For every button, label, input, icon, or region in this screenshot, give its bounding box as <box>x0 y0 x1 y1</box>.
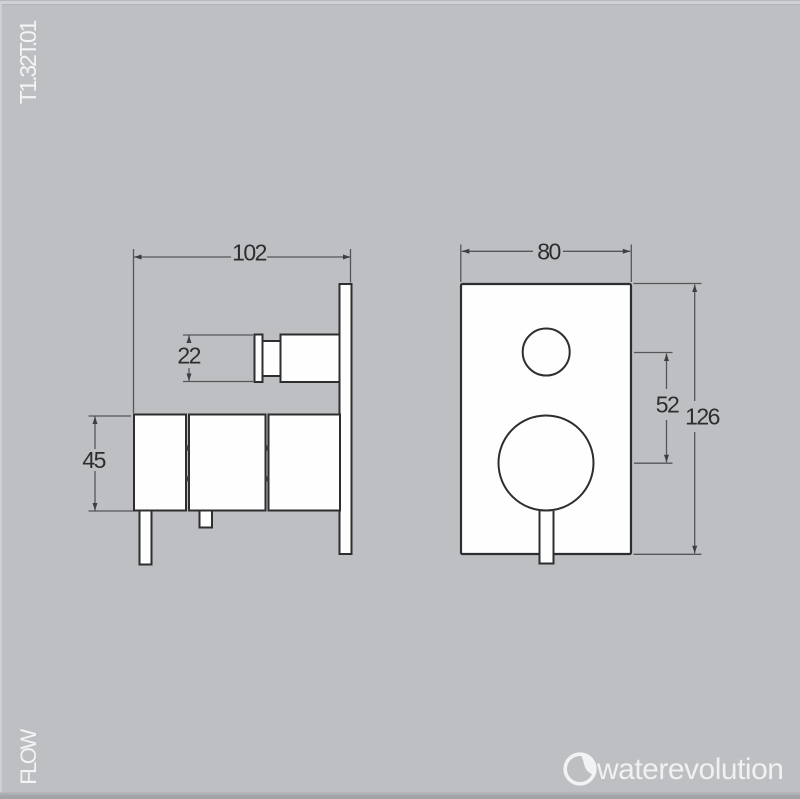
svg-text:FLOW: FLOW <box>16 728 41 784</box>
svg-text:102: 102 <box>232 240 267 266</box>
svg-text:80: 80 <box>537 239 560 265</box>
svg-text:126: 126 <box>685 404 720 430</box>
svg-text:52: 52 <box>656 392 679 418</box>
svg-text:T1.32T.01: T1.32T.01 <box>15 20 41 104</box>
svg-text:waterevolution: waterevolution <box>596 753 783 786</box>
svg-text:45: 45 <box>82 447 105 473</box>
svg-text:22: 22 <box>177 343 200 369</box>
